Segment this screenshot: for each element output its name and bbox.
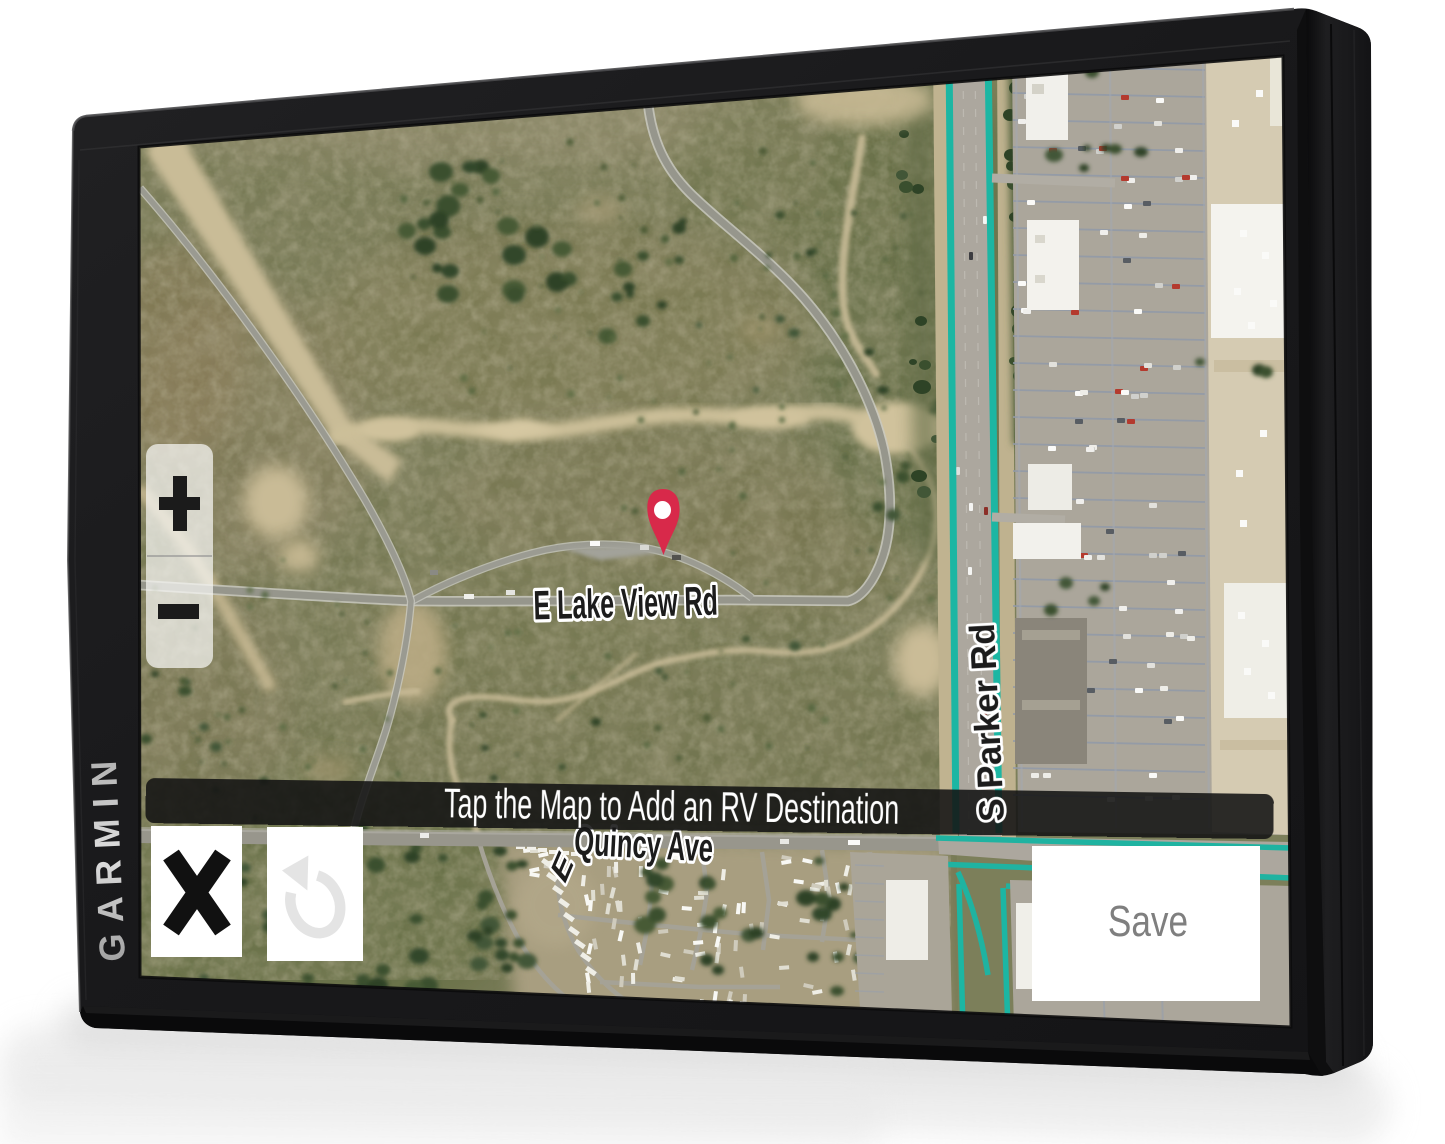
svg-text:E Lake View Rd: E Lake View Rd [533, 578, 718, 629]
svg-text:Save: Save [1108, 897, 1188, 946]
svg-text:Tap the Map to Add an RV Desti: Tap the Map to Add an RV Destination [444, 780, 900, 833]
